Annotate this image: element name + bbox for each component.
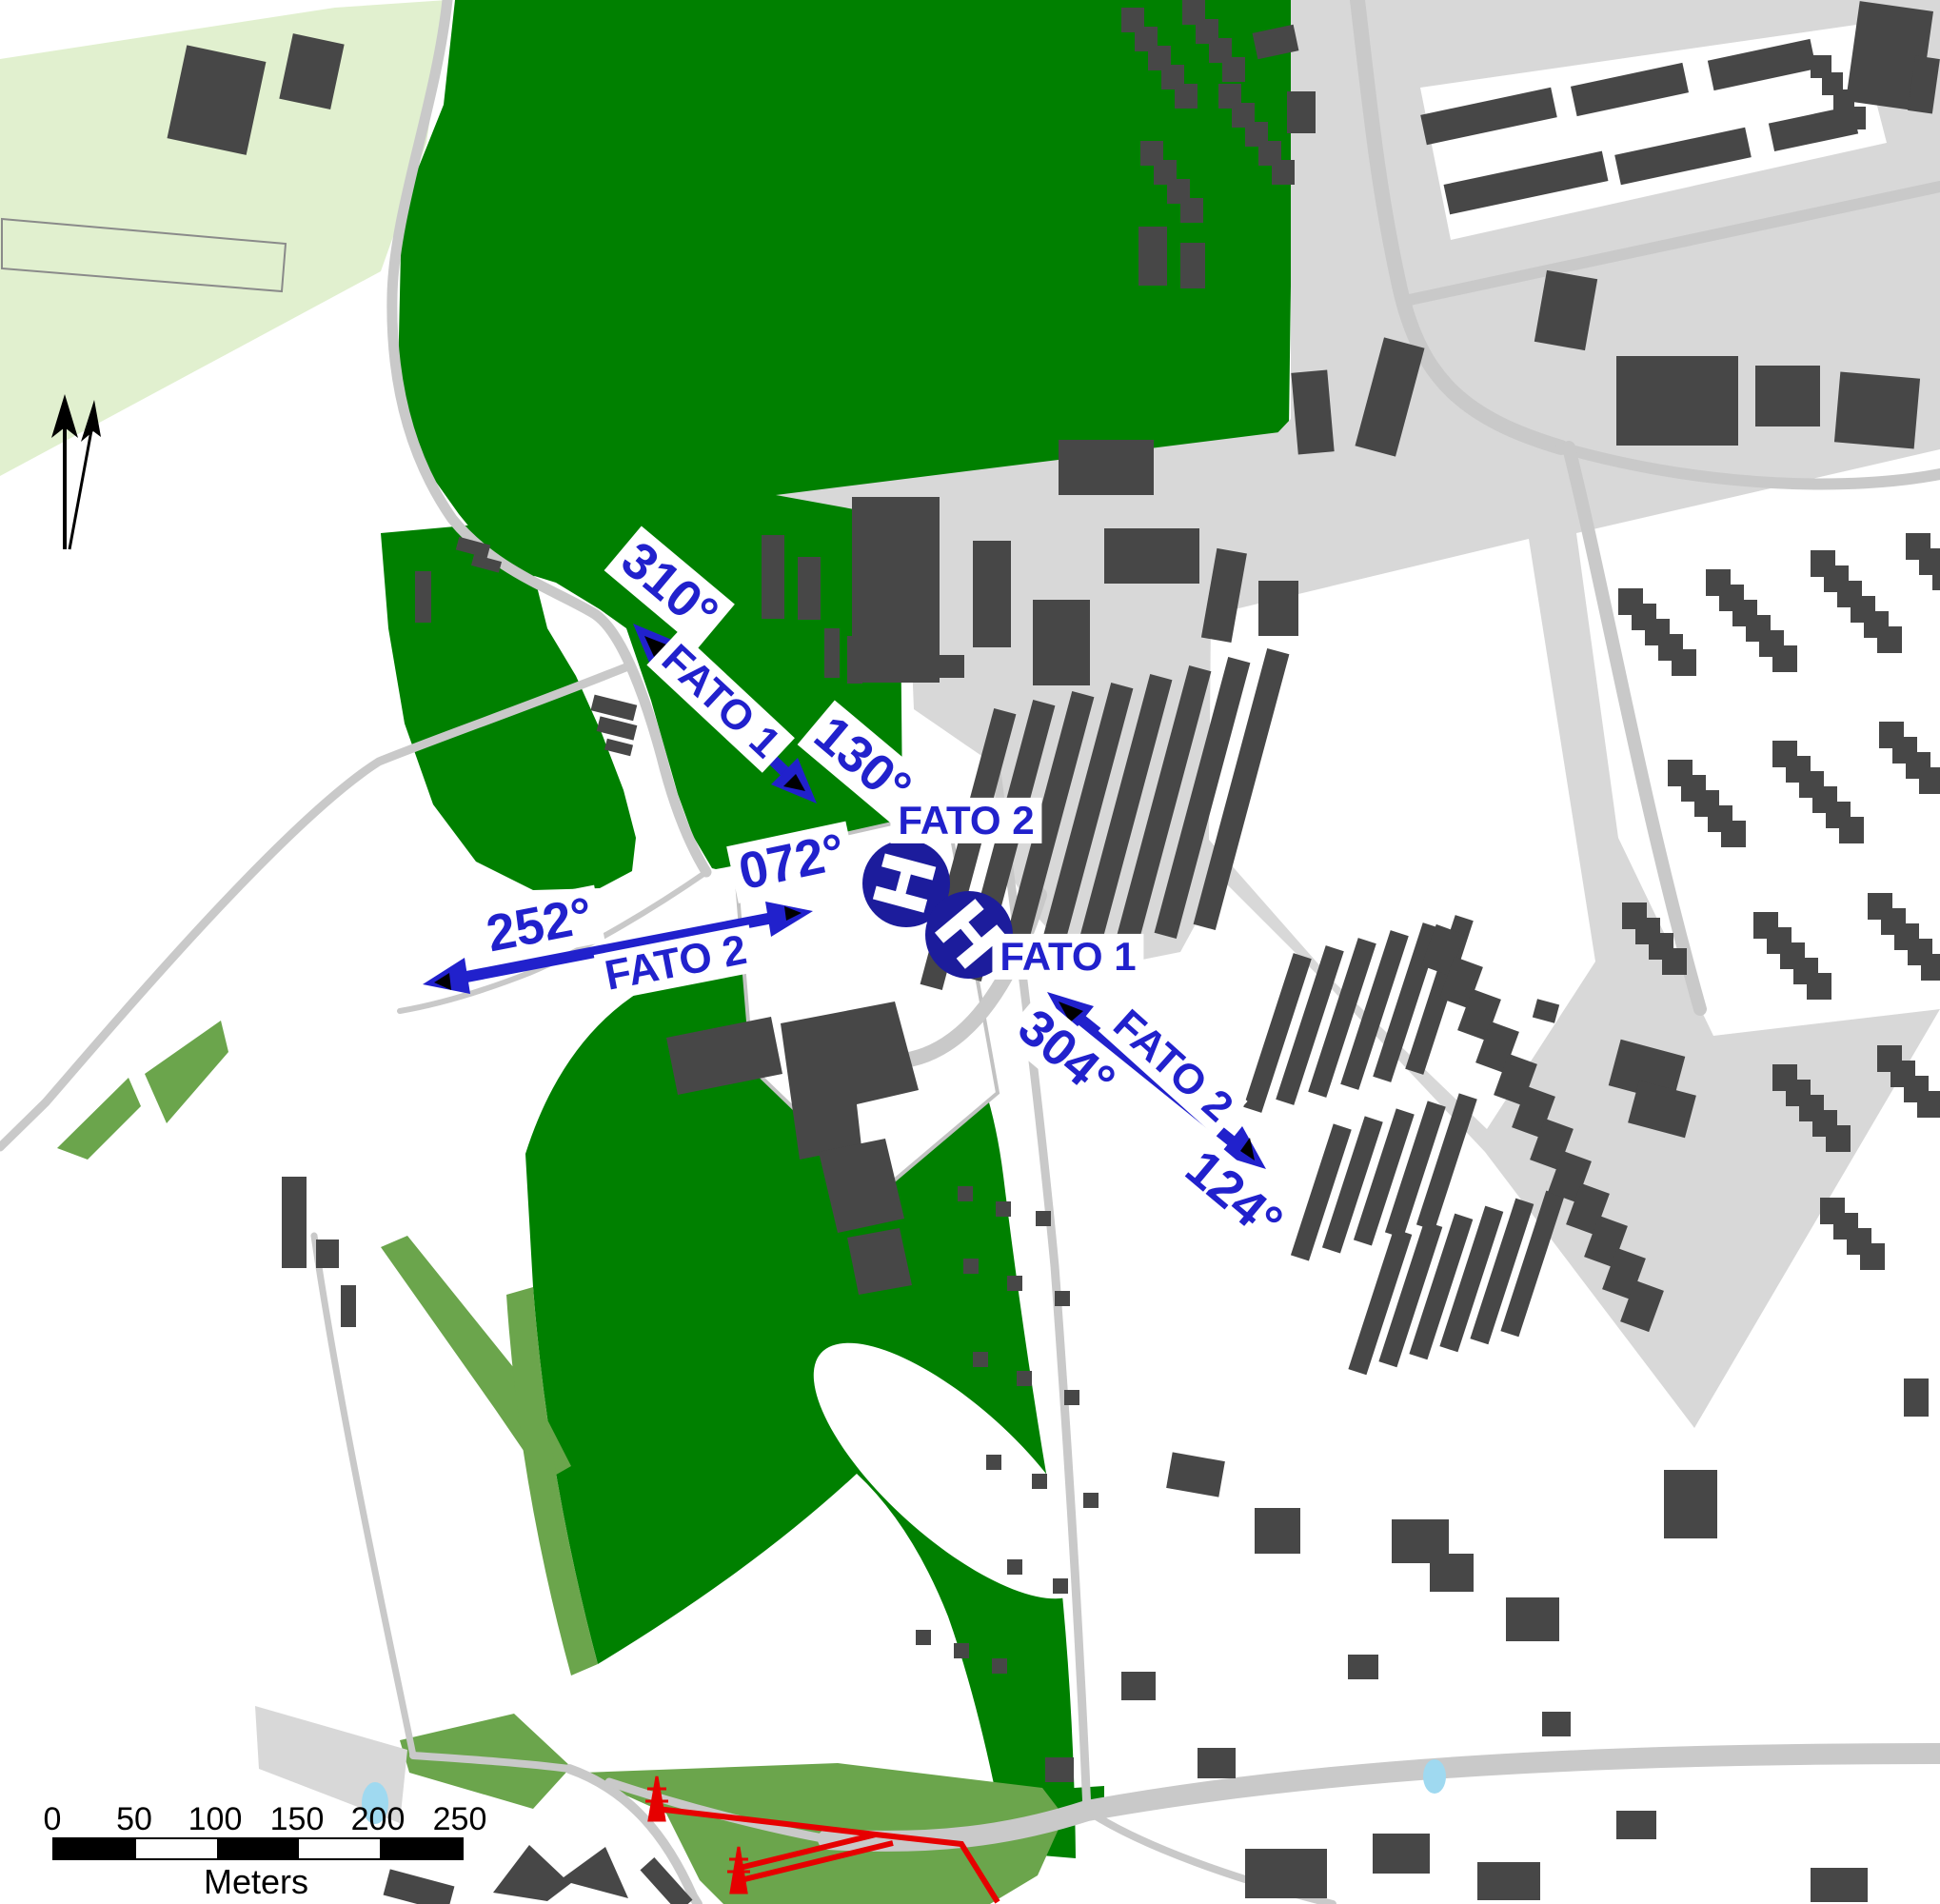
- scale-tick: 100: [188, 1801, 243, 1838]
- scale-tick: 0: [44, 1801, 62, 1838]
- scale-tick: 200: [351, 1801, 406, 1838]
- scale-tick: 150: [270, 1801, 325, 1838]
- scale-tick: 50: [116, 1801, 152, 1838]
- scale-bar-segments: [52, 1837, 464, 1860]
- scale-tick: 250: [433, 1801, 487, 1838]
- map-canvas: 310° 130° FATO 1 252° 072° FATO 2 304° 1…: [0, 0, 1940, 1904]
- scale-bar: 0 50 100 150 200 250 Meters: [52, 1801, 460, 1896]
- helipad-fato2-label: FATO 2: [890, 798, 1041, 843]
- helipad-fato1-label: FATO 1: [992, 934, 1143, 980]
- scale-unit-label: Meters: [52, 1862, 460, 1902]
